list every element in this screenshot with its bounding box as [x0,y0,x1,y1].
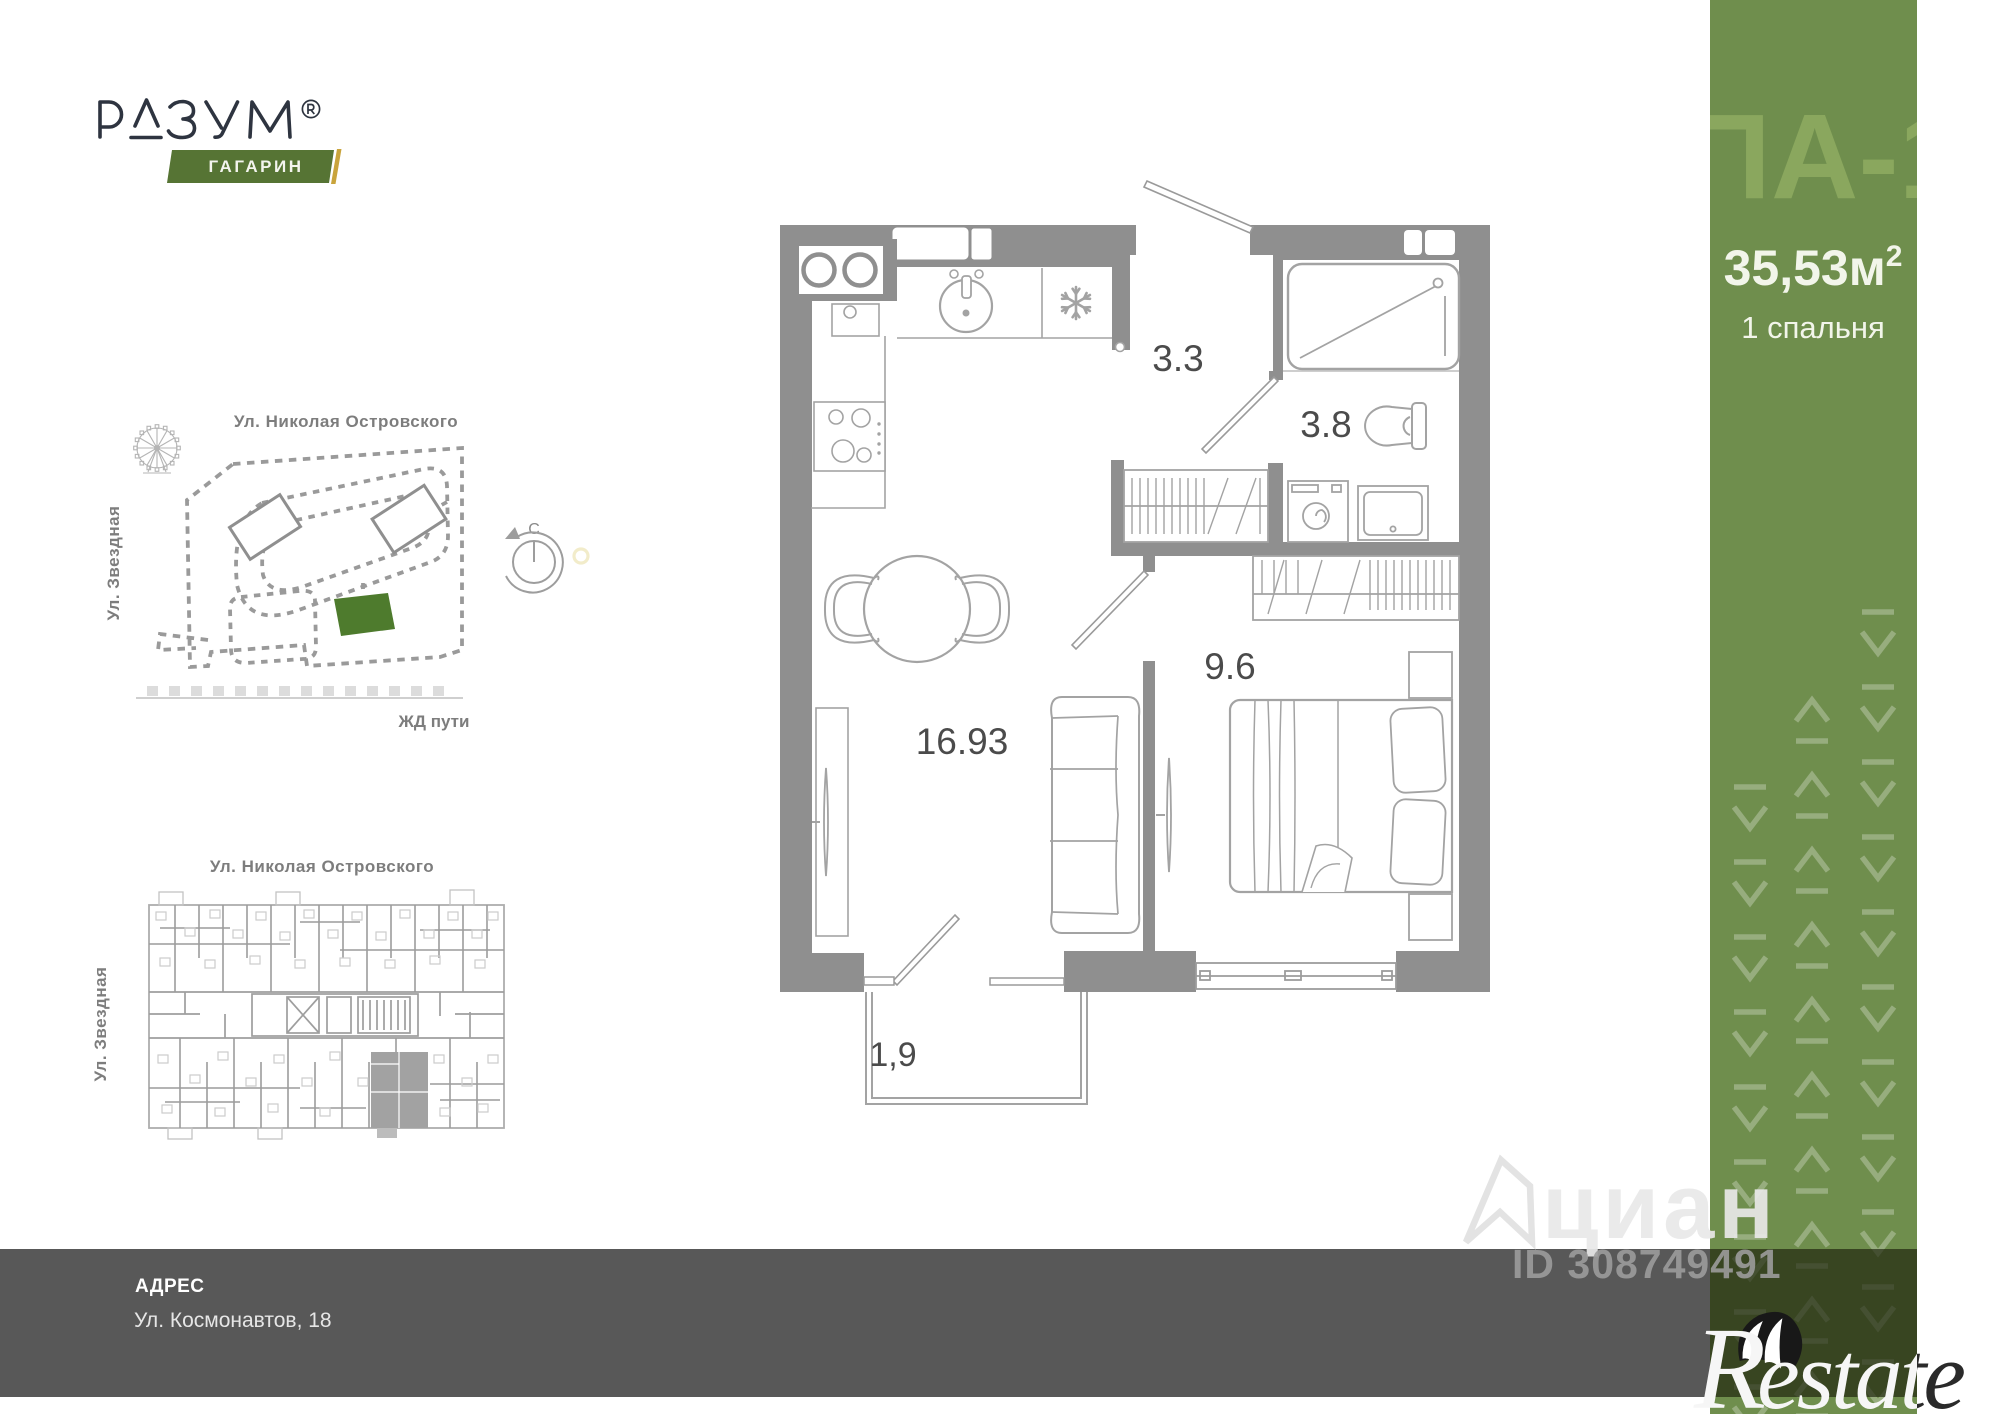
svg-text:1 спальня: 1 спальня [1741,310,1885,345]
svg-text:35,53м2: 35,53м2 [1724,240,1903,296]
svg-text:Ул. Звездная: Ул. Звездная [91,967,110,1082]
svg-text:Ул. Звездная: Ул. Звездная [104,506,123,621]
svg-text:ID 308749491: ID 308749491 [1512,1241,1782,1287]
svg-text:3.8: 3.8 [1300,404,1351,445]
svg-text:С: С [528,521,540,538]
svg-text:ЖД пути: ЖД пути [398,712,470,731]
svg-text:АДРЕС: АДРЕС [135,1276,205,1297]
svg-text:Ул. Николая Островского: Ул. Николая Островского [210,857,434,876]
svg-text:Ул. Космонавтов, 18: Ул. Космонавтов, 18 [134,1309,332,1332]
svg-text:16.93: 16.93 [916,721,1009,762]
svg-text:ГАГАРИН: ГАГАРИН [208,157,303,176]
svg-text:Ул. Николая Островского: Ул. Николая Островского [234,412,458,431]
svg-text:1,9: 1,9 [869,1036,916,1074]
svg-text:9.6: 9.6 [1204,646,1255,687]
svg-text:3.3: 3.3 [1152,338,1203,379]
